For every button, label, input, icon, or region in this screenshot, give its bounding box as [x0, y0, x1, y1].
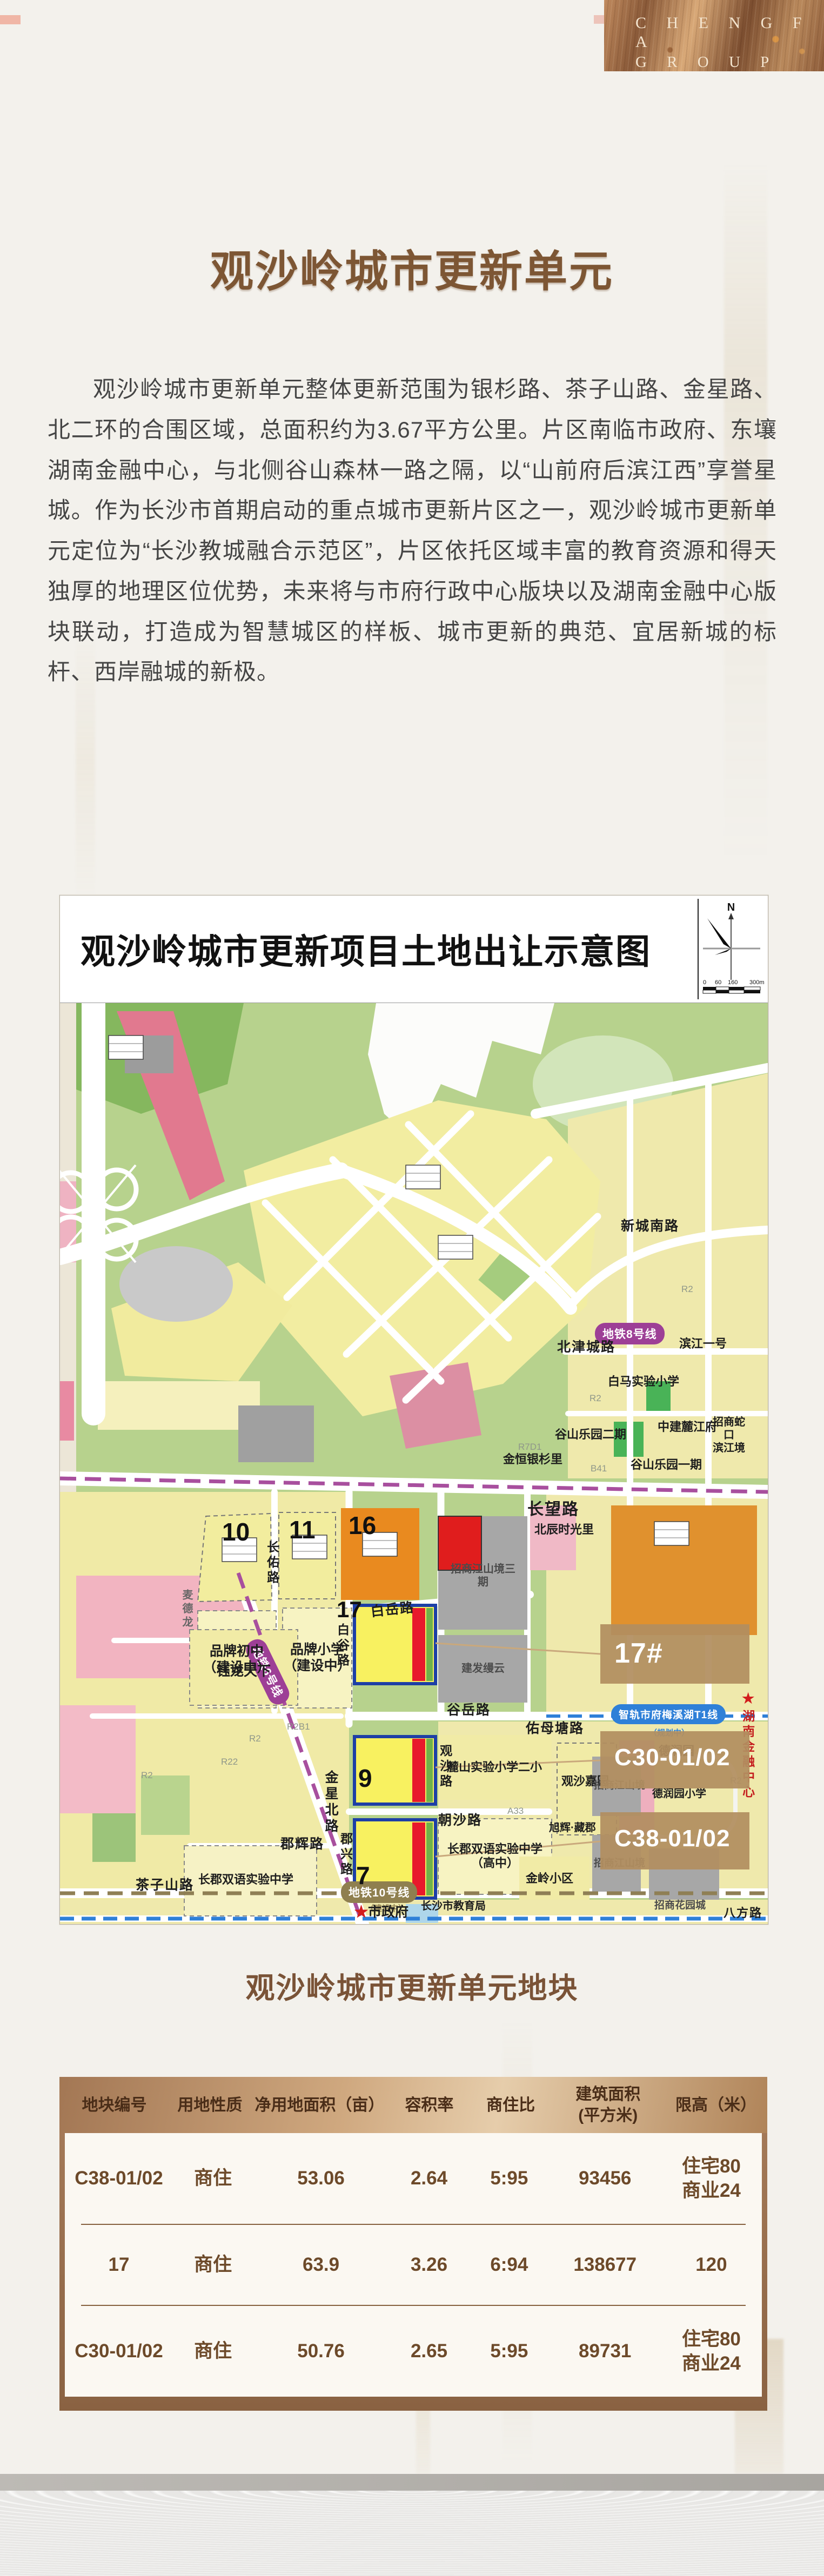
map-label-jiaoyuju: 长沙市教育局: [421, 1900, 486, 1913]
map-label-bafang-road: 八方路: [723, 1906, 762, 1920]
star-icon: ★: [354, 1905, 368, 1920]
map-label-yulong: 钰龙天下: [217, 1663, 271, 1679]
pink-accent-left: [0, 15, 21, 24]
cell-use: 商住: [173, 2166, 253, 2191]
svg-text:N: N: [727, 902, 735, 913]
map-canvas: 长望路 地铁8号线 地铁6号线 智轨市府梅溪湖T1线 （规划中） 地铁10号线 …: [60, 1003, 768, 1924]
cell-ratio: 6:94: [469, 2252, 549, 2277]
map-label-guyue-road: 谷岳路: [447, 1702, 491, 1718]
star-icon-hnjr: ★: [742, 1690, 754, 1707]
table-row: C38-01/02 商住 53.06 2.64 5:95 93456 住宅80 …: [65, 2133, 762, 2224]
map-title: 观沙岭城市更新项目土地出让示意图: [81, 896, 651, 1003]
map-label-lushan: 麓山实验小学二小: [447, 1760, 542, 1774]
parcel-number-16: 16: [349, 1511, 376, 1541]
cell-area: 53.06: [253, 2166, 389, 2191]
section-heading: 观沙岭城市更新单元地块: [0, 1964, 824, 2007]
map-label-junxing-road: 郡兴路: [338, 1832, 353, 1878]
col-header-use: 用地性质: [169, 2095, 251, 2116]
intro-paragraph: 观沙岭城市更新单元整体更新范围为银杉路、茶子山路、金星路、北二环的合围区域，总面…: [48, 369, 777, 692]
callout-c30: C30-01/02: [600, 1731, 749, 1788]
cell-use: 商住: [173, 2252, 253, 2277]
map-label-zshy: 招商花园城: [654, 1900, 706, 1912]
map-label-maidelong: 麦德龙: [180, 1589, 193, 1630]
zone-code-b41: B41: [591, 1463, 607, 1474]
col-header-area: 净用地面积（亩）: [251, 2095, 388, 2116]
footer-ripple-pattern: [0, 2491, 824, 2576]
cell-far: 3.26: [389, 2252, 469, 2277]
cell-area: 63.9: [253, 2252, 389, 2277]
cell-gfa: 138677: [550, 2252, 661, 2277]
col-header-id: 地块编号: [59, 2095, 169, 2116]
cell-ratio: 5:95: [469, 2166, 549, 2191]
svg-text:60: 60: [715, 979, 721, 986]
cell-id: 17: [65, 2252, 173, 2277]
map-label-chaosha-road: 朝沙路: [438, 1812, 482, 1828]
cell-limit: 住宅80 商业24: [661, 2327, 762, 2376]
map-label-beichen: 北辰时光里: [534, 1523, 594, 1537]
zone-code-r2: R2: [249, 1733, 261, 1744]
map-title-bar: 观沙岭城市更新项目土地出让示意图 N 0 60 160 300m: [60, 896, 768, 1003]
map-label-chazishan-road: 茶子山路: [136, 1877, 194, 1893]
cell-gfa: 89731: [550, 2339, 661, 2364]
map-label-pinpai-xiaoxue: 品牌小学 （建设中）: [283, 1642, 351, 1674]
svg-text:0: 0: [703, 979, 706, 986]
zone-code-r2: R2: [681, 1284, 693, 1295]
table-row: 17 商住 63.9 3.26 6:94 138677 120: [65, 2225, 762, 2305]
tram-t1-badge: 智轨市府梅溪湖T1线: [611, 1704, 726, 1724]
cell-limit: 住宅80 商业24: [661, 2154, 762, 2203]
map-label-jinheng: 金恒银杉里: [503, 1452, 562, 1467]
map-card: 观沙岭城市更新项目土地出让示意图 N 0 60 160 300m: [59, 895, 768, 1925]
map-label-gushan2: 谷山乐园二期: [555, 1428, 626, 1442]
cell-use: 商住: [173, 2339, 253, 2364]
map-label-youmutang-road: 佑母塘路: [526, 1720, 584, 1737]
cell-id: C30-01/02: [65, 2339, 173, 2364]
table-body: C38-01/02 商住 53.06 2.64 5:95 93456 住宅80 …: [65, 2133, 762, 2397]
scale-bar: 0 60 160 300m: [703, 979, 765, 993]
svg-text:160: 160: [728, 979, 738, 986]
parcel-number-9: 9: [358, 1764, 372, 1793]
map-label-changjun-gz: 长郡双语实验中学 （高中）: [447, 1842, 542, 1871]
map-label-zhongjian: 中建麓江府: [658, 1420, 717, 1434]
pink-accent-banner: [594, 15, 604, 24]
map-label-baima: 白马实验小学: [608, 1375, 679, 1389]
cell-far: 2.64: [389, 2166, 469, 2191]
callout-17: 17#: [600, 1624, 749, 1684]
page-title: 观沙岭城市更新单元: [0, 237, 824, 299]
map-label-derun-xiaoxue: 德润园小学: [652, 1787, 706, 1800]
compass-box: N 0 60 160 300m: [698, 899, 768, 999]
callout-c38: C38-01/02: [600, 1812, 749, 1869]
parcel-number-17: 17: [337, 1596, 362, 1623]
parcel-number-11: 11: [289, 1515, 316, 1545]
cell-gfa: 93456: [550, 2166, 661, 2191]
map-label-xuhui: 旭辉·藏郡: [549, 1821, 596, 1834]
cell-area: 50.76: [253, 2339, 389, 2364]
brand-line2: G R O U P: [635, 53, 824, 71]
parcel-number-7: 7: [356, 1861, 370, 1891]
map-label-jianfa: 建发缦云: [461, 1662, 505, 1675]
svg-text:300m: 300m: [749, 979, 765, 986]
page: C H E N G F A G R O U P 观沙岭城市更新单元 观沙岭城市更…: [0, 0, 824, 2576]
map-label-zsk: 招商蛇口 滨江境: [709, 1416, 748, 1455]
map-label-changwang-road: 长望路: [527, 1500, 579, 1519]
cell-limit: 120: [661, 2252, 762, 2277]
map-label-junhui-road: 郡辉路: [280, 1836, 324, 1852]
map-label-jinling: 金岭小区: [526, 1872, 573, 1886]
brand-line1: C H E N G F A: [635, 14, 824, 51]
parcels-table: 地块编号 用地性质 净用地面积（亩） 容积率 商住比 建筑面积 (平方米) 限高…: [59, 2077, 767, 2411]
map-label-jinxingbei-road: 金星北路: [323, 1770, 339, 1835]
col-header-gfa: 建筑面积 (平方米): [551, 2084, 665, 2126]
col-header-limit: 限高（米）: [665, 2095, 767, 2116]
col-header-ratio: 商住比: [470, 2095, 552, 2116]
zone-code-r2: R2: [589, 1393, 601, 1404]
map-label-gushan1: 谷山乐园一期: [631, 1458, 702, 1472]
footer-divider-bar: [0, 2474, 824, 2491]
parcel-number-10: 10: [222, 1517, 250, 1547]
col-header-far: 容积率: [388, 2095, 470, 2116]
map-label-changyou-road: 长佑路: [264, 1541, 279, 1586]
map-label-shizhengfu: ★市政府: [354, 1904, 408, 1920]
map-label-changjun: 长郡双语实验中学: [198, 1873, 293, 1887]
cell-ratio: 5:95: [469, 2339, 549, 2364]
map-label-binjiang: 滨江一号: [679, 1337, 727, 1351]
map-label-beijincheng-road: 北津城路: [557, 1339, 615, 1355]
zone-code-r2: R2: [141, 1770, 153, 1781]
zone-code-a33: A33: [507, 1806, 524, 1817]
brand-banner: C H E N G F A G R O U P: [604, 0, 824, 71]
zone-code-r7d1: R7D1: [518, 1442, 541, 1452]
cell-far: 2.65: [389, 2339, 469, 2364]
compass-icon: N 0 60 160 300m: [699, 899, 767, 999]
cell-id: C38-01/02: [65, 2166, 173, 2191]
zone-code-r22: R22: [221, 1757, 238, 1767]
map-label-xinchengnan-road: 新城南路: [621, 1218, 679, 1234]
metro-line10-badge: 地铁10号线: [341, 1881, 417, 1903]
zone-code-r2b1: R2B1: [287, 1721, 310, 1732]
table-row: C30-01/02 商住 50.76 2.65 5:95 89731 住宅80 …: [65, 2306, 762, 2397]
table-header-row: 地块编号 用地性质 净用地面积（亩） 容积率 商住比 建筑面积 (平方米) 限高…: [59, 2077, 767, 2133]
map-label-zsjs3: 招商江山境三期: [451, 1563, 515, 1589]
